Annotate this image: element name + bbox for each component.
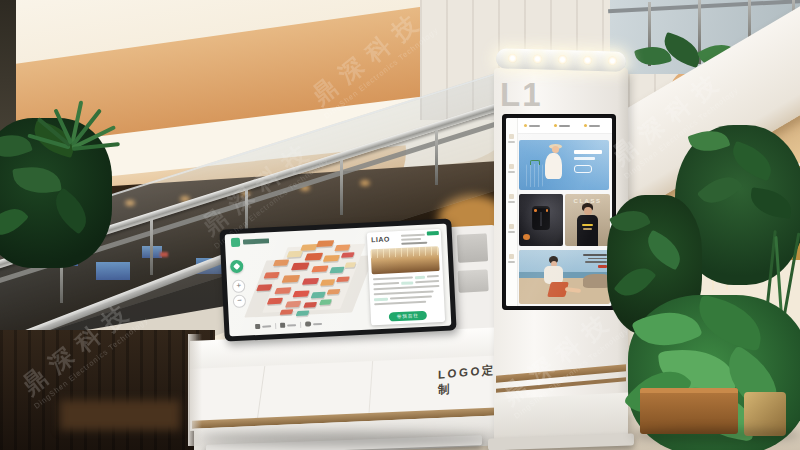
nav-label [529,125,540,127]
palm-plant [24,92,154,162]
banner-ad-suitcase[interactable] [519,140,609,190]
elevator-icon[interactable] [280,323,285,328]
green-suitcase [526,164,543,187]
led-light [533,54,542,63]
ad-woman-leg [565,287,581,293]
desc-line [373,285,439,290]
map-store-block[interactable] [334,244,350,251]
card-backpack[interactable] [519,194,563,246]
tower-ad-screen[interactable]: CLASS [502,114,616,310]
ad-model-body [545,153,562,179]
railing-post [340,160,343,215]
planter-rim [640,388,738,393]
kiosk-floor-shadow [198,432,498,446]
desc-line [415,280,439,283]
led-light-bar [496,48,626,71]
map-store-block[interactable] [274,287,291,294]
map-store-block[interactable] [316,240,334,247]
sidebar-item-label [508,171,515,173]
amenity-label [262,325,271,327]
map-store-block[interactable] [296,310,310,316]
plants-floor-shadow [630,428,800,442]
kiosk-side-shading [188,334,202,446]
service-desk-icon[interactable] [305,321,311,326]
nav-item[interactable] [554,124,570,127]
ad-cta-outline[interactable] [574,165,592,173]
kiosk-screen-ui: + − LIAO [225,224,452,337]
led-light [508,54,517,63]
screen-sidebar [506,118,518,306]
man-face [584,207,592,215]
map-store-block[interactable] [292,290,309,297]
desc-tag [401,281,413,285]
store-info-line [401,234,425,237]
navigate-cta-button[interactable]: 带我前往 [389,311,427,322]
nav-label [559,125,570,127]
sidebar-item-icon[interactable] [509,254,514,259]
ad-model-head [552,146,559,153]
store-info-line [401,238,421,241]
sidebar-item-label [508,231,515,233]
map-store-block[interactable] [287,251,303,258]
zoom-in-button[interactable]: + [232,280,246,294]
desc-line [373,276,413,280]
map-store-block[interactable] [282,275,301,283]
wood-streaks [0,330,215,450]
sidebar-item-icon[interactable] [509,134,514,139]
sidebar-item-label [508,141,515,143]
nav-icon [524,124,527,127]
screen-topnav [518,118,612,134]
sidebar-item-icon[interactable] [509,164,514,169]
railing-post [435,130,438,185]
map-store-block[interactable] [264,272,280,279]
store-brand-name: LIAO [371,235,390,243]
scanner-slot[interactable] [458,269,489,293]
desc-line [390,295,432,299]
wayfinding-kiosk: LOGO定制 [188,218,510,450]
amenity-label [287,324,296,326]
suitcase-handle [530,160,540,165]
store-photo [371,246,440,274]
desc-line [427,275,439,278]
store-info-line [401,242,427,245]
floor-label: L1 [500,76,543,114]
dark-floor-under-escalator [0,330,215,450]
led-light [558,55,567,64]
locate-icon [233,263,240,270]
photo-ceiling-lights [371,246,439,258]
map-store-block[interactable] [304,253,323,261]
desc-tag [374,297,388,301]
ad-headline [574,150,602,154]
desc-line [373,282,399,285]
desc-tag [415,275,425,278]
sidebar-item-label [508,261,515,263]
map-store-block[interactable] [291,262,310,270]
card-reader-slot[interactable] [457,233,488,263]
man-torso [577,215,598,246]
shirt-print [582,224,593,226]
sidebar-item-label [508,201,515,203]
backpack-zip [540,212,542,226]
tower-screen-ui: CLASS [506,118,612,306]
led-light [583,56,592,65]
nav-icon [554,124,557,127]
kiosk-touchscreen[interactable]: + − LIAO [219,218,456,341]
divider [300,322,301,328]
map-store-block[interactable] [302,278,319,285]
ad-subline [574,157,595,160]
map-store-block[interactable] [323,255,340,262]
map-app-logo-icon [231,238,240,247]
desc-line [374,301,426,306]
backpack-buckle [534,209,537,212]
pumpkin-prop [523,234,530,240]
map-store-block[interactable] [256,284,272,291]
backpack-buckle [546,209,549,212]
mall-map[interactable] [243,238,369,326]
sidebar-item-icon[interactable] [509,224,514,229]
divider [275,323,276,329]
railing-post [150,220,153,275]
locate-button[interactable] [230,260,244,274]
restroom-icon[interactable] [255,324,260,329]
nav-label [589,125,600,127]
floor-warm-reflection [60,400,180,430]
amenity-label [313,323,322,325]
backpack [532,206,550,230]
map-store-block[interactable] [267,298,283,305]
nav-item[interactable] [584,124,600,127]
open-status-badge [427,231,439,236]
map-store-block[interactable] [285,301,301,308]
zoom-out-button[interactable]: − [233,295,247,309]
nav-icon [584,124,587,127]
banner-ad-seaside[interactable] [519,250,610,304]
sidebar-item-icon[interactable] [509,194,514,199]
store-detail-panel: LIAO [367,229,445,326]
map-store-block[interactable] [300,244,317,251]
shirt-print [583,228,592,230]
desc-line [374,290,434,295]
mall-photo-scene: LOGO定制 [0,0,800,450]
nav-item[interactable] [524,124,540,127]
led-light [608,56,617,65]
map-store-block[interactable] [311,265,328,272]
